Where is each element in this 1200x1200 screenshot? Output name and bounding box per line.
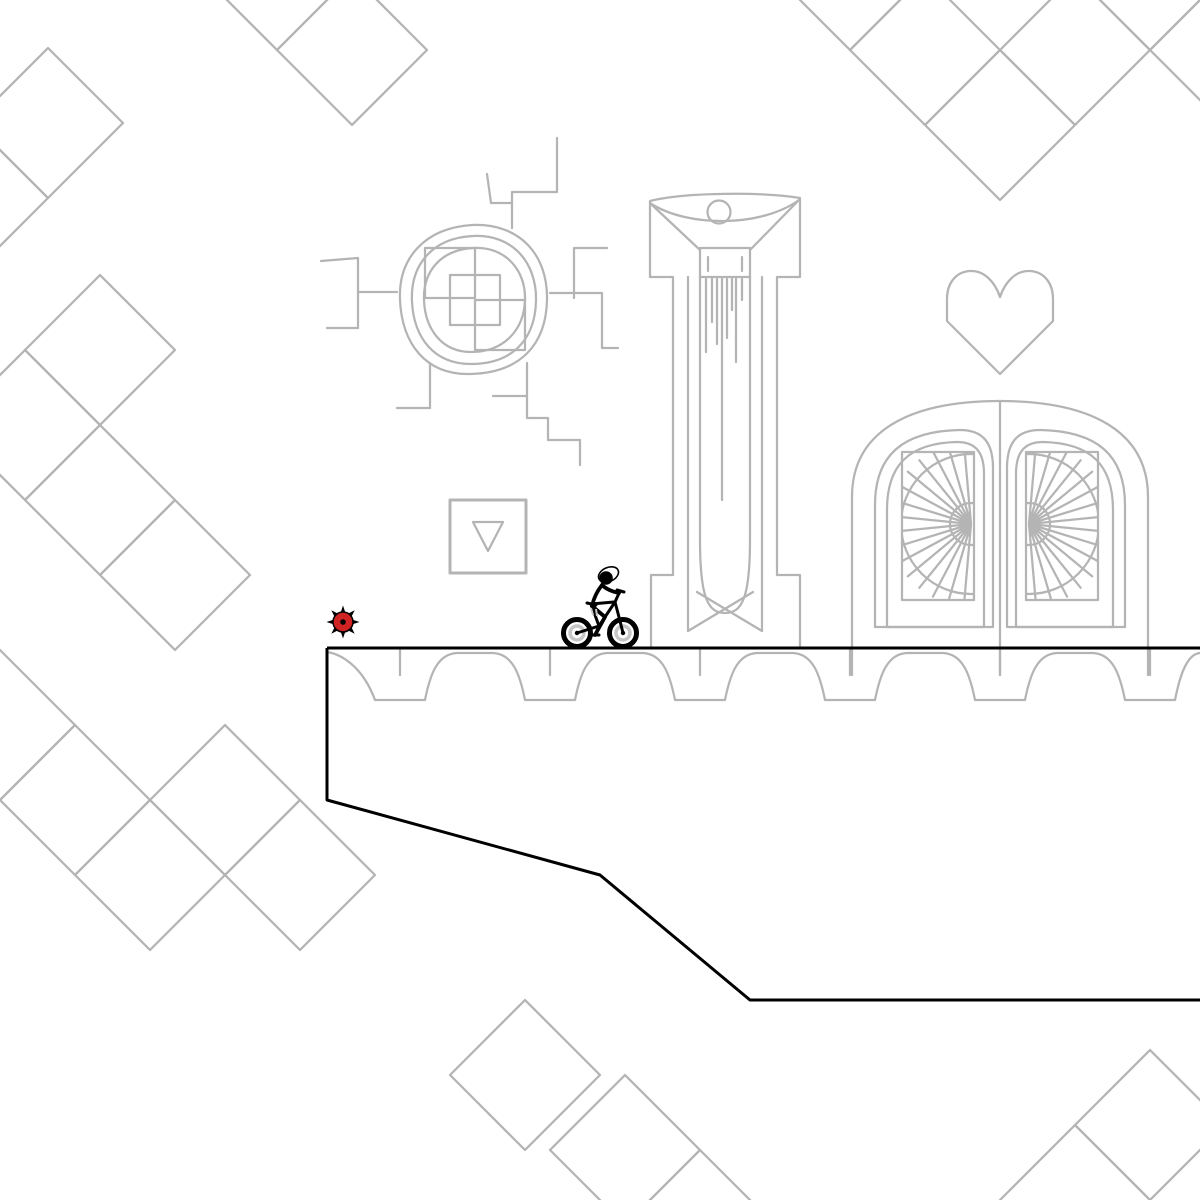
maze-trace-top bbox=[512, 138, 557, 228]
tower-base-cross bbox=[688, 592, 762, 631]
cliff-edge bbox=[327, 648, 1200, 1000]
heart-path bbox=[947, 271, 1053, 374]
diamond-outline bbox=[550, 1075, 700, 1200]
game-canvas[interactable] bbox=[0, 0, 1200, 1200]
down-triangle-icon bbox=[473, 522, 503, 551]
right-door-fan bbox=[959, 442, 1111, 605]
diamond-outline bbox=[450, 1000, 600, 1150]
mine-core bbox=[340, 619, 346, 625]
tower-diagonal-right bbox=[750, 200, 799, 250]
diamond-outline bbox=[202, 0, 352, 50]
diamond-outline bbox=[25, 425, 175, 575]
double-gate bbox=[852, 401, 1148, 675]
maze-trace-bottom-left bbox=[397, 363, 430, 408]
diamond-outline bbox=[625, 1150, 775, 1200]
diamond-outline bbox=[0, 650, 75, 800]
maze-trace-left-bracket bbox=[321, 258, 358, 328]
diamond-outline bbox=[1075, 0, 1200, 50]
diamond-outline bbox=[150, 725, 300, 875]
diamond-outline bbox=[0, 48, 123, 198]
diamond-outline bbox=[1075, 1050, 1200, 1200]
left-door-fan bbox=[889, 442, 1041, 605]
diamond-outline bbox=[277, 0, 427, 125]
bmx-rider bbox=[564, 564, 637, 647]
diamond-outline bbox=[0, 725, 150, 875]
maze-trace-top-left bbox=[487, 174, 512, 203]
diamond-outline bbox=[25, 275, 175, 425]
diamond-outline bbox=[925, 50, 1075, 200]
diamond-outline bbox=[225, 800, 375, 950]
maze-trace-right-top bbox=[574, 248, 607, 298]
track-line bbox=[327, 648, 1200, 1000]
spike-mine bbox=[327, 606, 360, 639]
maze-trace-right-step bbox=[550, 293, 618, 348]
game-stage[interactable] bbox=[0, 0, 1200, 1200]
waterfall-drips bbox=[706, 279, 742, 500]
diamond-outline bbox=[1150, 0, 1200, 125]
heart-outline bbox=[947, 271, 1053, 374]
waterfall-tower bbox=[650, 194, 800, 648]
scribble-maze bbox=[321, 138, 618, 465]
diamond-outline bbox=[100, 500, 250, 650]
diamond-outline bbox=[0, 350, 100, 500]
maze-trace-bottom-stairs bbox=[527, 363, 580, 465]
diamond-outline bbox=[1000, 0, 1150, 125]
tower-outline bbox=[650, 194, 800, 648]
background-diamonds bbox=[0, 0, 1200, 1200]
spout-box-ticks bbox=[708, 257, 742, 271]
diamond-outline bbox=[850, 0, 1000, 125]
tower-chute-u bbox=[700, 277, 750, 613]
triangle-plate-square bbox=[450, 500, 526, 573]
diamond-outline bbox=[775, 0, 925, 50]
diamond-outline bbox=[0, 123, 48, 273]
arch-pattern bbox=[327, 652, 1200, 700]
bike bbox=[564, 590, 637, 647]
triangle-plate bbox=[450, 500, 526, 573]
bridge-arches bbox=[327, 650, 1200, 700]
diamond-outline bbox=[1000, 1125, 1150, 1200]
tower-diagonal-left bbox=[651, 204, 700, 250]
diamond-outline bbox=[75, 800, 225, 950]
